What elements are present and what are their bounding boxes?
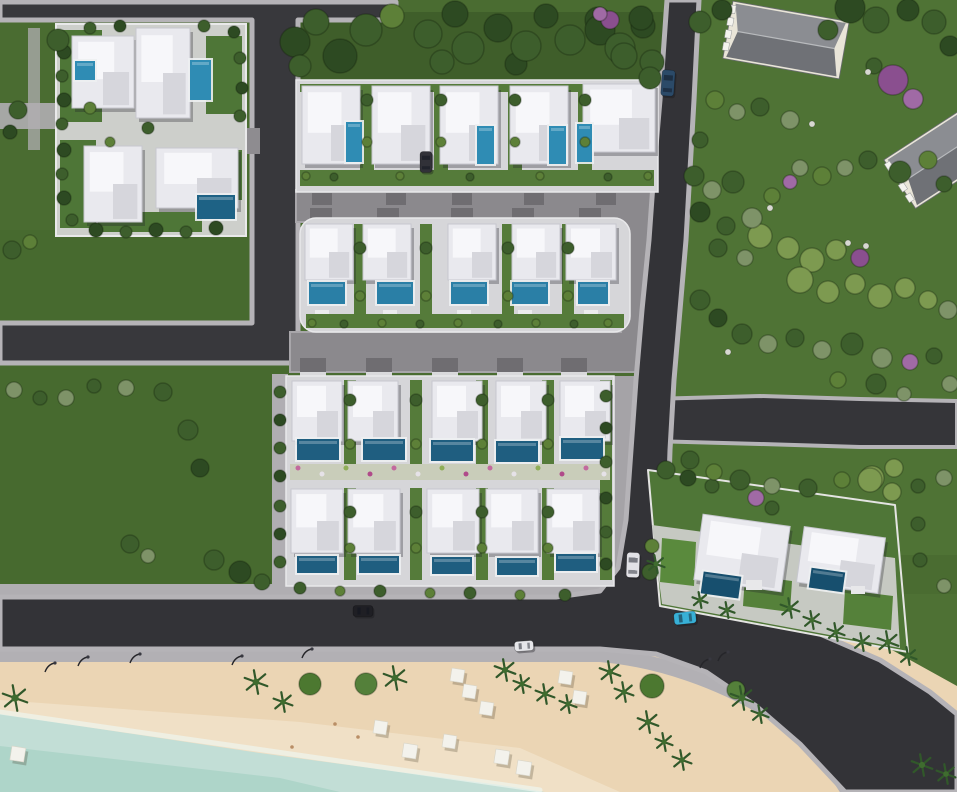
tree-light <box>23 235 37 249</box>
umbrella-canopy <box>10 746 26 762</box>
tree-mid <box>354 242 366 254</box>
flower-bed-dots <box>464 472 469 477</box>
villa-wing <box>457 411 478 439</box>
facade-window-frame <box>724 30 731 39</box>
bush-gray-green <box>936 470 952 486</box>
driveway <box>452 193 472 205</box>
tree-mid <box>732 324 752 344</box>
tree-light <box>411 543 421 553</box>
tree-mid <box>542 394 554 406</box>
tree-mid <box>600 526 612 538</box>
tree-dark <box>209 221 223 235</box>
tree-dark <box>274 414 286 426</box>
swimming-pool <box>576 280 610 306</box>
tree-mid <box>913 553 927 567</box>
villa-building <box>348 381 401 445</box>
palm-crown <box>757 711 762 716</box>
villa-building <box>348 489 403 557</box>
tree-mid <box>765 501 779 515</box>
tree-mid <box>562 242 574 254</box>
tree-mid <box>274 500 286 512</box>
tree-mid <box>841 333 863 355</box>
umbrella-canopy <box>516 760 532 776</box>
palm-crown <box>885 639 891 645</box>
villa-wing <box>536 252 556 278</box>
tree-mid <box>889 161 911 183</box>
tree-mid <box>464 587 476 599</box>
bush-feathery <box>868 284 892 308</box>
beachgoer <box>333 722 337 726</box>
rock <box>725 349 731 355</box>
umbrella-canopy <box>402 743 418 759</box>
tree-light <box>477 543 487 553</box>
driveway <box>432 358 458 374</box>
pool-glint <box>361 558 397 561</box>
tree-mid <box>509 94 521 106</box>
tree-mid <box>604 173 612 181</box>
rear-window <box>367 608 370 615</box>
tree-mid <box>555 25 585 55</box>
tree-dark <box>57 143 71 157</box>
bush-feathery <box>919 291 937 309</box>
villa-building <box>363 224 414 284</box>
driveway <box>366 358 392 374</box>
palm-crown <box>653 561 658 566</box>
bush-gray-green <box>792 160 808 176</box>
lamp-head <box>708 657 711 660</box>
tree-mid <box>559 589 571 601</box>
tree-dark <box>3 125 17 139</box>
bush-gray-green <box>937 579 951 593</box>
tree-dark <box>229 561 251 583</box>
rear-window <box>422 166 430 169</box>
rows34-garden <box>410 488 422 580</box>
driveway <box>312 193 332 205</box>
sunbed <box>584 310 598 314</box>
tree-mid <box>120 226 132 238</box>
tree-light <box>421 291 431 301</box>
tree-mid <box>33 391 47 405</box>
bush-gray-green <box>872 348 892 368</box>
rock <box>809 121 815 127</box>
sunbed-east <box>851 586 865 594</box>
tree-mid <box>9 101 27 119</box>
tree-mid <box>180 226 192 238</box>
palm-crown <box>11 694 18 701</box>
tree-dark <box>629 6 653 30</box>
villa-building <box>292 381 345 445</box>
tree-mid <box>717 217 735 235</box>
swimming-pool <box>510 280 550 306</box>
tree-light <box>302 172 310 180</box>
pool-glint <box>311 284 343 287</box>
villa-wing <box>163 73 186 114</box>
beach-tree <box>299 673 321 695</box>
villa-building <box>84 146 145 226</box>
umbrella-canopy <box>558 670 573 685</box>
driveway <box>524 193 544 205</box>
bush-gray-green <box>781 111 799 129</box>
villa-building <box>136 28 193 122</box>
villa-wing <box>113 184 137 219</box>
tree-flowering-purple <box>851 249 869 267</box>
tree-light <box>645 539 659 553</box>
tree-dark <box>191 459 209 477</box>
flower-bed-dots <box>344 466 349 471</box>
rear-window <box>663 88 672 93</box>
bush-gray-green <box>813 341 831 359</box>
beachgoer <box>290 745 294 749</box>
bush-feathery <box>777 237 799 259</box>
palm-crown <box>607 669 613 675</box>
tree-mid <box>570 320 578 328</box>
tree-mid <box>452 32 484 64</box>
lamp-head <box>310 647 313 650</box>
pool-glint <box>434 559 470 562</box>
tree-light <box>425 588 435 598</box>
tree-mid <box>361 94 373 106</box>
tree-mid <box>466 173 474 181</box>
umbrella-canopy <box>450 668 465 683</box>
tree-light <box>378 319 386 327</box>
flower-bed-dots <box>296 466 301 471</box>
tree-light <box>644 172 652 180</box>
palm-crown <box>661 739 666 744</box>
tree-mid <box>542 506 554 518</box>
lamp-head <box>86 655 89 658</box>
tree-dark <box>835 0 865 23</box>
car-white-van <box>626 552 641 579</box>
tree-light <box>834 472 850 488</box>
tree-dark <box>709 309 727 327</box>
tree-light <box>411 439 421 449</box>
tree-mid <box>87 379 101 393</box>
tree-mid <box>274 556 286 568</box>
palm-crown <box>392 675 399 682</box>
tree-dark <box>236 82 248 94</box>
tree-light <box>510 137 520 147</box>
tree-mid <box>121 535 139 553</box>
tree-mid <box>254 574 270 590</box>
tree-mid <box>579 94 591 106</box>
tree-light <box>706 464 722 480</box>
tree-light <box>345 543 355 553</box>
tree-dark <box>228 26 240 38</box>
tree-light <box>706 91 724 109</box>
villa-wing <box>472 252 492 278</box>
tree-light <box>335 586 345 596</box>
rock <box>767 205 773 211</box>
bush-gray-green <box>759 335 777 353</box>
tree-mid <box>350 14 382 46</box>
tree-light <box>543 543 553 553</box>
compound-sidewalk <box>28 28 40 150</box>
bush-gray-green <box>141 549 155 563</box>
villa-wing <box>329 252 349 278</box>
tree-mid <box>689 11 711 33</box>
rows34-garden <box>410 380 422 464</box>
tree-light <box>764 188 780 204</box>
tree-light <box>563 291 573 301</box>
pool-glint <box>580 284 606 287</box>
tree-mid <box>330 173 338 181</box>
swimming-pool <box>475 124 496 166</box>
tree-light <box>345 439 355 449</box>
bush-feathery <box>883 483 901 501</box>
villa-building <box>547 489 602 557</box>
swimming-pool <box>547 124 568 166</box>
tree-light <box>919 151 937 169</box>
aerial-render <box>0 0 957 792</box>
sunbed <box>315 310 329 314</box>
windshield <box>357 608 360 615</box>
tree-dark <box>600 558 612 570</box>
bush-gray-green <box>118 380 134 396</box>
tree-mid <box>494 320 502 328</box>
tree-mid <box>178 420 198 440</box>
pool-glint <box>558 556 594 559</box>
tree-mid <box>430 50 454 74</box>
tree-light <box>543 439 553 449</box>
tree-mid <box>684 166 704 186</box>
tree-dark <box>484 14 512 42</box>
tree-mid <box>511 31 541 61</box>
tree-mid <box>722 171 744 193</box>
tree-mid <box>751 98 769 116</box>
villa-wing <box>374 521 396 550</box>
villa-building <box>566 224 619 284</box>
palm-crown <box>519 681 524 686</box>
tree-mid <box>234 110 246 122</box>
villa-building <box>448 224 499 284</box>
palm-crown <box>905 653 910 658</box>
tree-flowering-lilac <box>903 89 923 109</box>
bush-gray-green <box>837 160 853 176</box>
pool-water <box>190 60 211 100</box>
palm-crown <box>565 701 570 706</box>
tree-dark <box>600 422 612 434</box>
swimming-pool <box>188 58 213 102</box>
tree-dark <box>57 191 71 205</box>
tree-mid <box>657 461 675 479</box>
tree-mid <box>818 20 838 40</box>
tree-light <box>84 102 96 114</box>
tree-mid <box>681 451 699 469</box>
villa-building <box>583 84 658 156</box>
villa-wing <box>453 521 475 550</box>
beach-tree-light <box>355 673 377 695</box>
rear-window <box>628 570 637 574</box>
sunbed <box>518 310 532 314</box>
palm-crown <box>809 617 814 622</box>
tree-flowering-lilac <box>783 175 797 189</box>
swimming-pool <box>495 556 539 577</box>
tree-dark <box>274 528 286 540</box>
swimming-pool <box>361 437 407 462</box>
tree-mid <box>410 506 422 518</box>
flower-bed-dots <box>488 466 493 471</box>
bush-gray-green <box>6 382 22 398</box>
flower-bed-dots <box>536 466 541 471</box>
tree-mid <box>476 506 488 518</box>
flower-bed-dots <box>584 466 589 471</box>
tree-dark <box>442 1 468 27</box>
car-body <box>514 640 534 651</box>
tree-light <box>380 4 404 28</box>
tree-light <box>105 137 115 147</box>
tree-mid <box>66 214 78 226</box>
swimming-pool <box>430 555 474 576</box>
bush-feathery <box>885 459 903 477</box>
swimming-pool <box>195 193 237 221</box>
pool-glint <box>563 440 601 443</box>
palm-crown <box>919 762 925 768</box>
tree-light <box>503 291 513 301</box>
rear-window <box>527 643 530 649</box>
flower-bed-dots <box>602 472 607 477</box>
street-row2 <box>290 332 658 372</box>
villa-wing <box>521 411 542 439</box>
tree-dark <box>323 39 357 73</box>
tree-dark <box>712 0 732 20</box>
swimming-pool <box>554 552 598 573</box>
palm-crown <box>739 695 746 702</box>
pool-glint <box>453 284 485 287</box>
swimming-pool <box>449 280 489 306</box>
bush-feathery <box>858 468 882 492</box>
windshield <box>629 557 638 562</box>
pool-glint <box>199 197 233 200</box>
palm-crown <box>787 605 793 611</box>
tree-dark <box>897 0 919 21</box>
tree-mid <box>709 239 727 257</box>
pool-glint <box>551 128 564 131</box>
tree-light <box>604 319 612 327</box>
tree-mid <box>344 394 356 406</box>
aerial-site-plan <box>0 0 957 792</box>
umbrella-canopy <box>442 734 457 749</box>
tree-mid <box>926 348 942 364</box>
swimming-pool <box>307 280 347 306</box>
tree-mid <box>56 70 68 82</box>
pool-glint <box>77 63 93 66</box>
car-body <box>661 70 676 97</box>
villa-wing <box>317 411 338 439</box>
flower-bed-dots <box>440 466 445 471</box>
villa-building <box>432 381 485 445</box>
tree-mid <box>922 10 946 34</box>
bush-gray-green <box>58 390 74 406</box>
pool-glint <box>479 128 492 131</box>
bush-gray-green <box>942 376 957 392</box>
palm-crown <box>833 629 838 634</box>
bush-gray-green <box>729 104 745 120</box>
beachgoer <box>356 735 360 739</box>
tree-light <box>436 137 446 147</box>
bush-gray-green <box>764 478 780 494</box>
lamp-head <box>53 661 56 664</box>
swimming-pool <box>357 554 401 575</box>
lamp-head <box>138 652 141 655</box>
pool-glint <box>365 441 403 444</box>
driveway <box>561 358 587 374</box>
tree-mid <box>274 386 286 398</box>
villa-building <box>486 489 541 557</box>
villa-building <box>427 489 482 557</box>
pool-glint <box>299 558 335 561</box>
tree-light <box>454 319 462 327</box>
car-cyan <box>673 611 698 627</box>
swimming-pool <box>375 280 415 306</box>
tree-mid <box>730 470 750 490</box>
villa-wing <box>619 118 649 149</box>
palm-crown <box>698 598 702 602</box>
windshield <box>664 75 673 81</box>
tree-mid <box>410 394 422 406</box>
rock <box>863 243 869 249</box>
pool-glint <box>514 284 546 287</box>
tree-mid <box>476 394 488 406</box>
tree-flowering-lilac <box>748 490 764 506</box>
tree-mid <box>786 329 804 347</box>
palm-crown <box>253 679 260 686</box>
east-branch-road <box>650 396 957 447</box>
tree-mid <box>374 585 386 597</box>
tree-mid <box>340 320 348 328</box>
palm-crown <box>725 608 729 612</box>
tree-mid <box>198 20 210 32</box>
tree-mid <box>289 55 311 77</box>
palm-crown <box>859 639 864 644</box>
tree-mid <box>705 479 719 493</box>
tree-dark <box>149 223 163 237</box>
tree-mid <box>274 442 286 454</box>
tree-light <box>362 137 372 147</box>
villa-wing <box>317 521 339 550</box>
tree-light <box>308 319 316 327</box>
umbrella-canopy <box>494 749 510 765</box>
palm-crown <box>943 771 949 777</box>
tree-mid <box>911 479 925 493</box>
villa-building <box>305 224 356 284</box>
tree-light <box>536 172 544 180</box>
villa-building <box>496 381 549 445</box>
pool-water <box>549 126 566 164</box>
bush-feathery <box>845 274 865 294</box>
villa-wing <box>512 521 534 550</box>
flower-bed-dots <box>320 472 325 477</box>
car-parked <box>420 152 434 175</box>
lamp-head <box>240 654 243 657</box>
villa-building <box>512 224 563 284</box>
tree-mid <box>859 151 877 169</box>
umbrella-canopy <box>462 684 477 699</box>
car-body <box>420 152 432 173</box>
tree-dark <box>680 470 696 486</box>
driveway <box>386 193 406 205</box>
car-blue <box>660 70 676 99</box>
tree-light <box>477 439 487 449</box>
tree-mid <box>502 242 514 254</box>
sunbed <box>383 310 397 314</box>
palm-crown <box>645 719 651 725</box>
tree-dark <box>274 470 286 482</box>
tree-mid <box>435 94 447 106</box>
tree-dark <box>940 36 957 56</box>
car-dark <box>353 606 375 619</box>
tree-light <box>515 590 525 600</box>
pool-glint <box>498 443 536 446</box>
